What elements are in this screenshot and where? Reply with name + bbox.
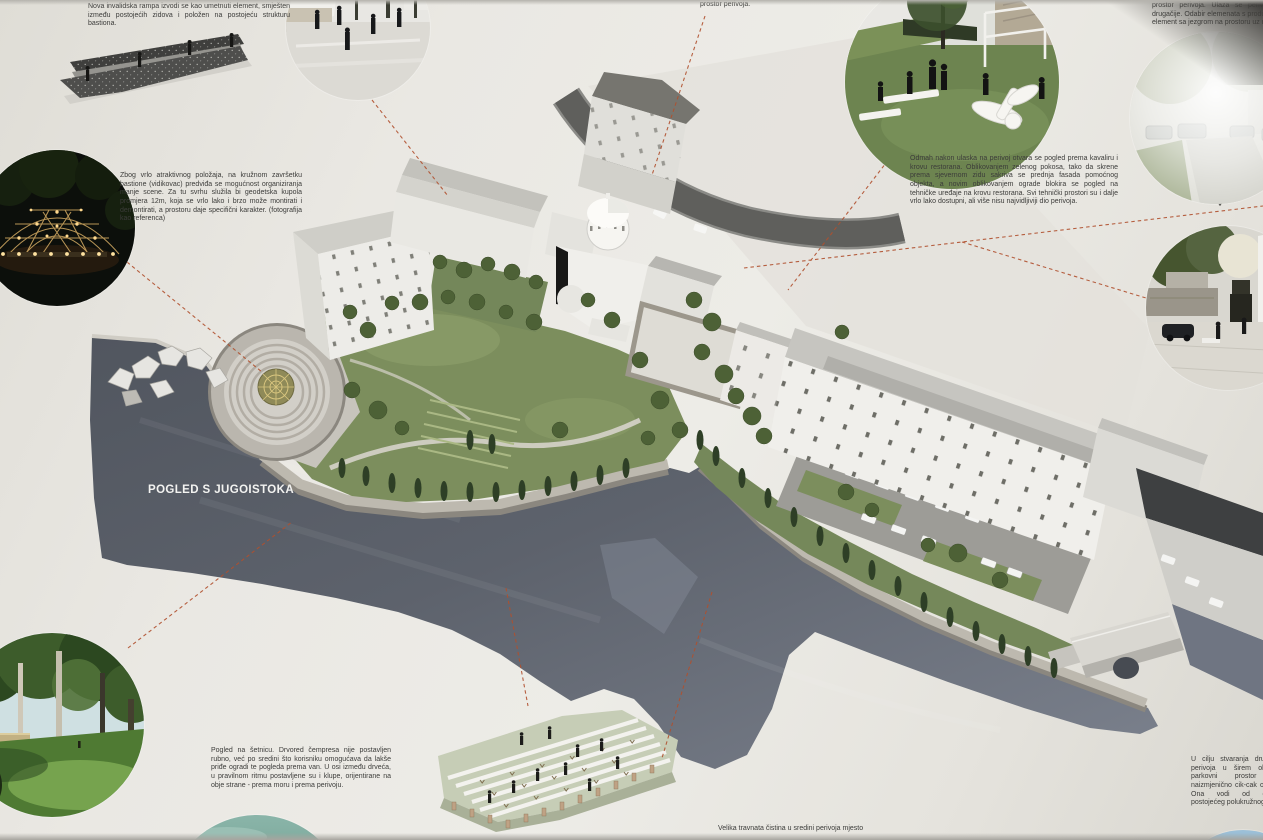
annotation-ramp: Nova invalidska rampa izvodi se kao umet… bbox=[88, 3, 290, 29]
site-plan-rendering bbox=[0, 0, 1263, 840]
terraces-detail-axonometric bbox=[438, 710, 678, 832]
annotation-top-right-fragment: prostor perivoja. Ulaza se perivoju te d… bbox=[1152, 2, 1263, 28]
annotation-promenade: Pogled na šetnicu. Drvored čempresa nije… bbox=[211, 747, 391, 790]
presentation-board: Nova invalidska rampa izvodi se kao umet… bbox=[0, 0, 1263, 840]
annotation-park-entry: Odmah nakon ulaska na perivoj otvara se … bbox=[910, 155, 1118, 207]
annotation-zigzag-fragment: U cilju stvaranja drugačijeg perivoja u … bbox=[1191, 756, 1263, 808]
ramp-detail-axonometric bbox=[60, 33, 252, 104]
annotation-top-center-fragment: prostor perivoja. bbox=[700, 1, 820, 10]
geodesic-dome-plan bbox=[258, 369, 294, 405]
annotation-clearing-fragment: Velika travnata čistina u sredini perivo… bbox=[718, 825, 938, 834]
view-direction-label: POGLED S JUGOISTOKA bbox=[148, 484, 294, 496]
annotation-dome-stage: Zbog vrlo atraktivnog položaja, na kružn… bbox=[120, 172, 302, 224]
